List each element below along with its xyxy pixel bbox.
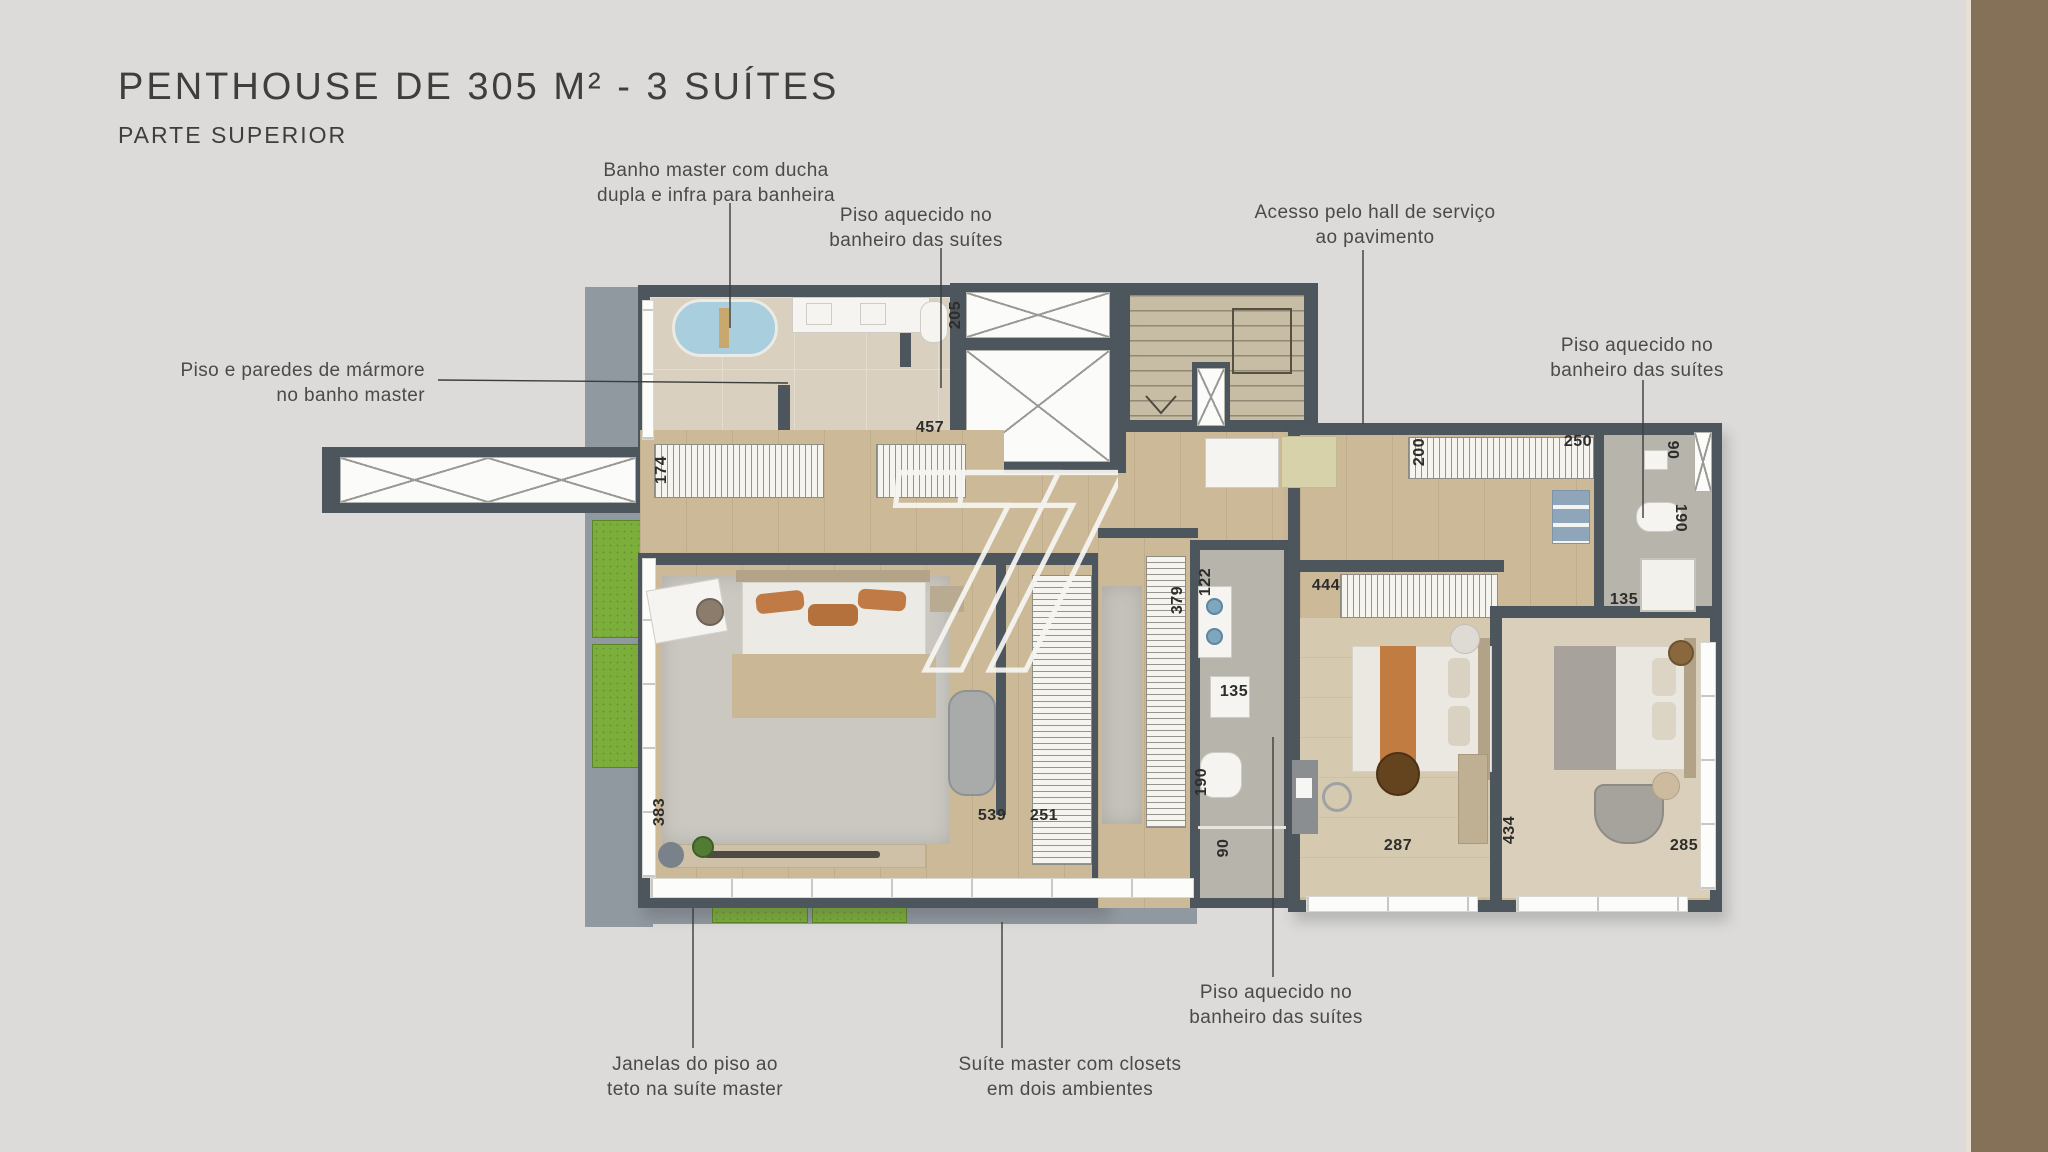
closet-wardrobe (1340, 574, 1498, 618)
dimension-label: 251 (1030, 807, 1058, 825)
page-title: PENTHOUSE DE 305 M² - 3 SUÍTES (118, 66, 839, 109)
dimension-label: 90 (1663, 441, 1681, 460)
sink (860, 303, 886, 325)
bedroom2-window-right (1700, 642, 1716, 890)
sink-bowl (1206, 598, 1223, 615)
bed-pillow (1652, 658, 1676, 696)
bed-pillow (1448, 658, 1470, 698)
hall-cabinet (1205, 438, 1279, 488)
closet-bench (948, 690, 996, 796)
bedroom2-window (1516, 896, 1688, 912)
bathtub-ledge (719, 308, 729, 348)
bed-pillow (808, 604, 858, 626)
vent-shaft-window (340, 457, 636, 503)
dimension-label: 539 (978, 807, 1006, 825)
shower (1640, 558, 1696, 612)
dimension-label: 200 (1411, 438, 1429, 466)
bedroom1-window (1306, 896, 1478, 912)
dimension-label: 135 (1220, 683, 1248, 701)
plant (692, 836, 714, 858)
closet-wardrobe (654, 444, 824, 498)
dimension-label: 135 (1610, 591, 1638, 609)
dimension-label: 434 (1501, 816, 1519, 844)
annotation-piso-aquecido-bottom: Piso aquecido no banheiro das suítes (1189, 980, 1362, 1030)
hall-bench (1281, 436, 1337, 488)
vanity (1198, 586, 1232, 658)
bed-pillow (1448, 706, 1470, 746)
tall-cabinet (1458, 754, 1488, 844)
table-lamp (1668, 640, 1694, 666)
side-table (1450, 624, 1480, 654)
dimension-label: 457 (916, 419, 944, 437)
desk-chair (1322, 782, 1352, 812)
toilet (920, 301, 948, 343)
floorplan-page: PENTHOUSE DE 305 M² - 3 SUÍTES PARTE SUP… (0, 0, 2048, 1152)
dimension-label: 190 (1671, 504, 1689, 532)
bed-blanket (1554, 646, 1616, 770)
dimension-label: 205 (947, 301, 965, 329)
page-subtitle: PARTE SUPERIOR (118, 122, 347, 149)
side-color-band (1966, 0, 2048, 1152)
bath-window (1694, 432, 1712, 492)
laptop (1296, 778, 1312, 798)
dimension-label: 90 (1215, 839, 1233, 858)
pouf (1376, 752, 1420, 796)
shower-glass (1198, 826, 1286, 829)
stair-railing (1232, 308, 1292, 374)
desk-chair (696, 598, 724, 626)
tv-slab (704, 851, 880, 858)
dimension-label: 174 (653, 456, 671, 484)
dimension-label: 285 (1670, 837, 1698, 855)
bedroom1-top-wall (1288, 560, 1504, 572)
bed-pillow (1652, 702, 1676, 740)
dimension-label: 250 (1564, 433, 1592, 451)
annotation-suite-closets: Suíte master com closets em dois ambient… (959, 1052, 1182, 1102)
stair-shaft-window (1197, 368, 1225, 426)
dimension-label: 287 (1384, 837, 1412, 855)
towel-stack (1552, 490, 1590, 544)
elevator-shaft (966, 292, 1110, 338)
stool (658, 842, 684, 868)
dimension-label: 122 (1197, 568, 1215, 596)
suite-window-bottom (650, 878, 1194, 898)
dimension-label: 379 (1169, 586, 1187, 614)
annotation-acesso-hall: Acesso pelo hall de serviço ao pavimento (1254, 200, 1495, 250)
dimension-label: 383 (651, 798, 669, 826)
dimension-label: 190 (1193, 768, 1211, 796)
dimension-label: 444 (1312, 577, 1340, 595)
annotation-banho-master: Banho master com ducha dupla e infra par… (597, 158, 835, 208)
sink-bowl (1206, 628, 1223, 645)
brand-7-watermark-icon (858, 448, 1118, 698)
annotation-marmore: Piso e paredes de mármore no banho maste… (155, 358, 425, 408)
side-table (1652, 772, 1680, 800)
annotation-janelas: Janelas do piso ao teto na suíte master (607, 1052, 783, 1102)
bath-window (642, 300, 654, 440)
annotation-piso-aquecido-right: Piso aquecido no banheiro das suítes (1550, 333, 1723, 383)
sink (806, 303, 832, 325)
annotation-piso-aquecido-top: Piso aquecido no banheiro das suítes (829, 203, 1002, 253)
